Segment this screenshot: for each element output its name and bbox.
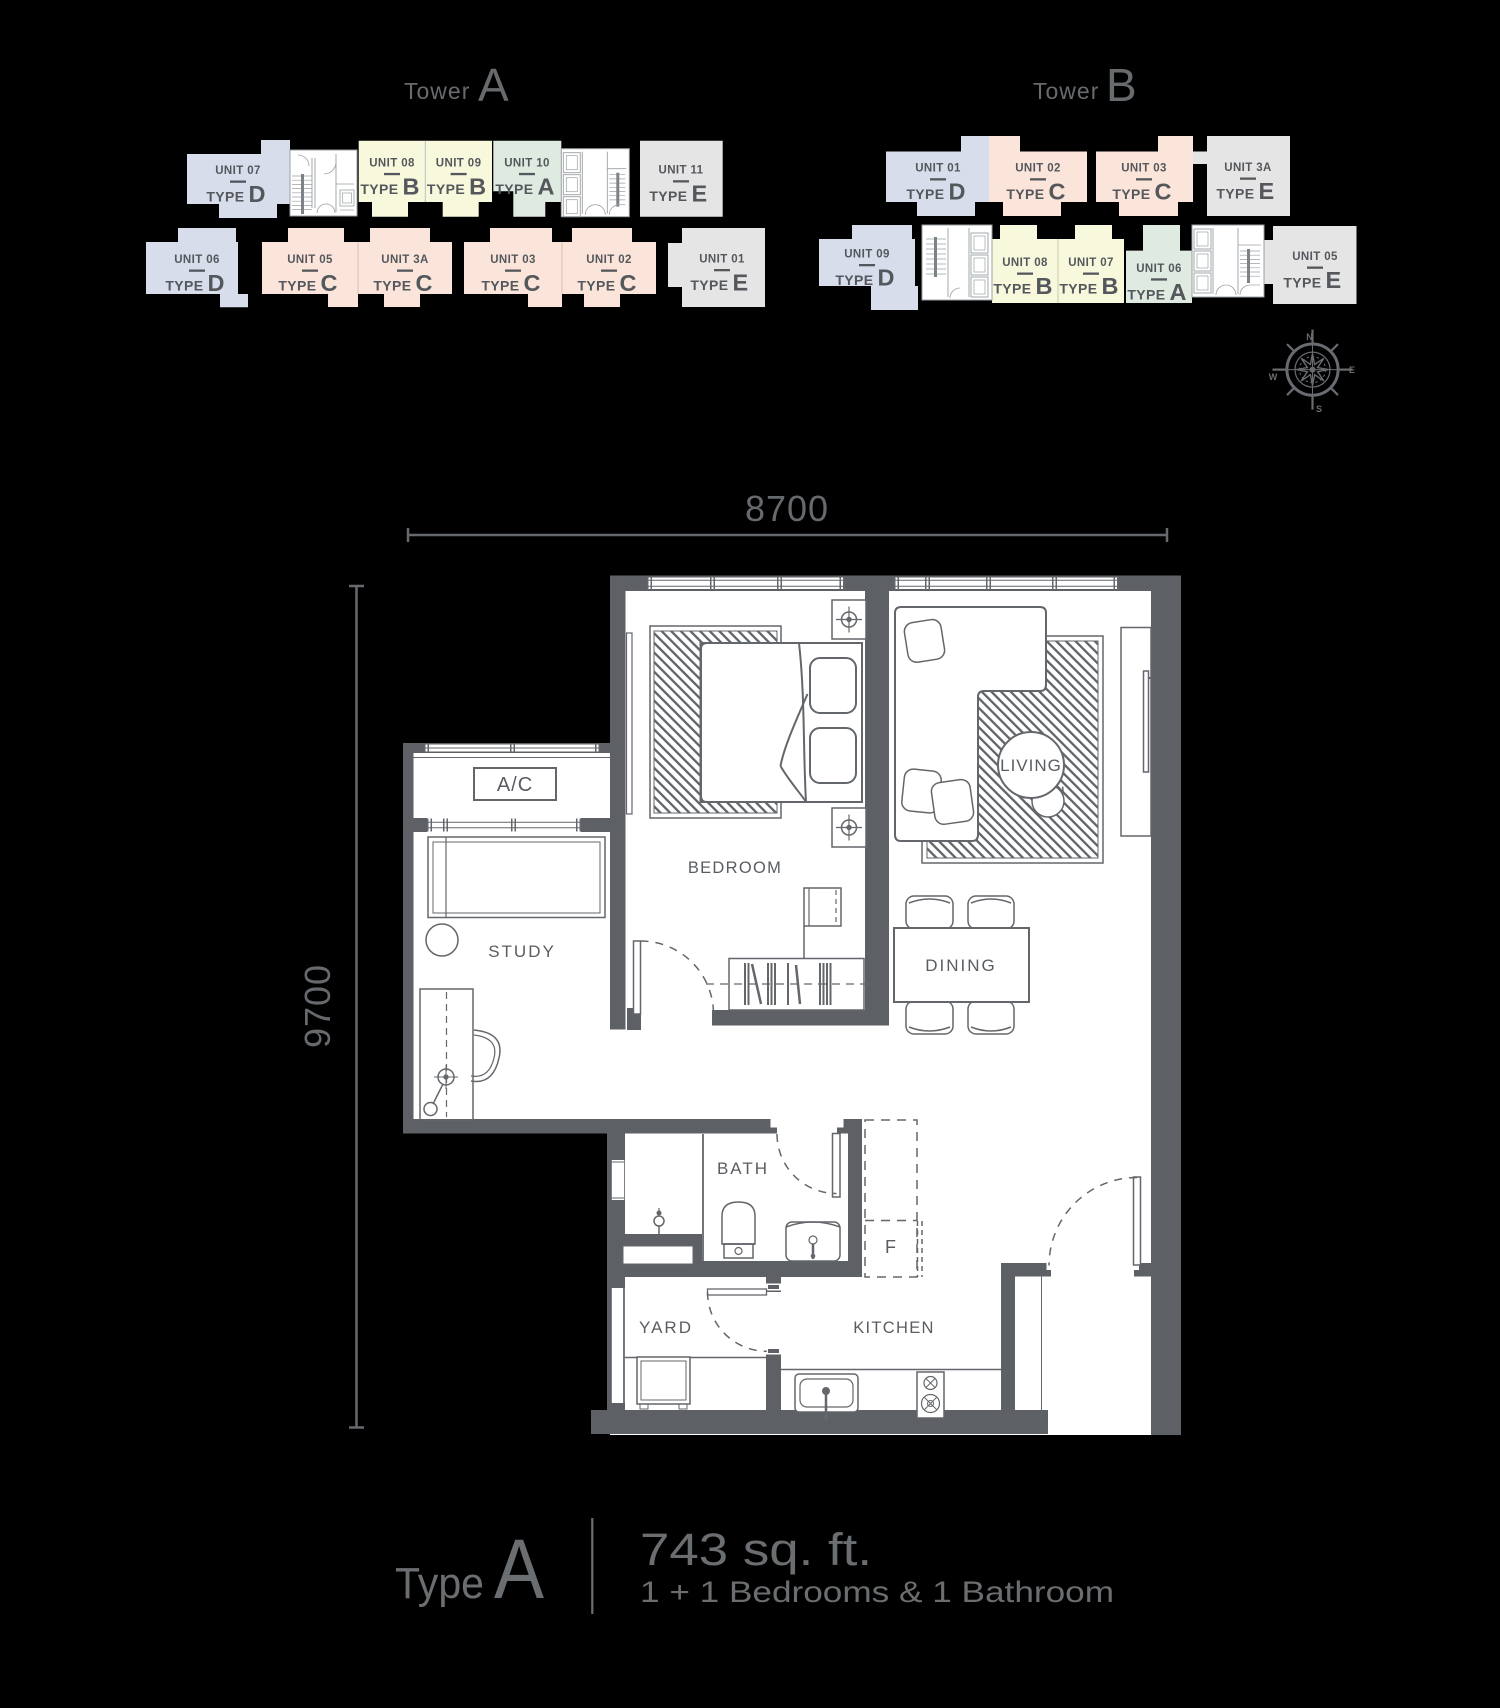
- svg-text:D: D: [949, 179, 966, 205]
- svg-text:TYPE: TYPE: [206, 189, 244, 205]
- svg-text:Tower: Tower: [1033, 78, 1099, 104]
- svg-text:YARD: YARD: [639, 1318, 693, 1337]
- svg-text:D: D: [208, 270, 225, 296]
- svg-text:UNIT 09: UNIT 09: [844, 249, 890, 261]
- svg-text:UNIT 10: UNIT 10: [504, 157, 550, 169]
- svg-text:UNIT 09: UNIT 09: [436, 157, 482, 169]
- svg-text:C: C: [1155, 179, 1172, 205]
- svg-text:TYPE: TYPE: [373, 278, 411, 294]
- svg-text:TYPE: TYPE: [1127, 286, 1165, 302]
- svg-text:UNIT 02: UNIT 02: [1015, 163, 1061, 175]
- svg-text:UNIT 02: UNIT 02: [586, 254, 632, 266]
- svg-text:TYPE: TYPE: [1006, 186, 1044, 202]
- svg-text:B: B: [1106, 59, 1137, 111]
- svg-text:UNIT 05: UNIT 05: [287, 254, 333, 266]
- svg-text:BATH: BATH: [717, 1159, 769, 1178]
- svg-text:UNIT 3A: UNIT 3A: [1224, 162, 1272, 174]
- svg-text:TYPE: TYPE: [1112, 186, 1150, 202]
- svg-text:8700: 8700: [745, 488, 829, 529]
- svg-text:TYPE: TYPE: [1216, 186, 1254, 202]
- svg-text:TYPE: TYPE: [1283, 275, 1321, 291]
- svg-text:E: E: [733, 270, 749, 296]
- svg-text:A: A: [478, 59, 509, 111]
- svg-text:B: B: [1036, 273, 1053, 299]
- svg-text:TYPE: TYPE: [495, 181, 533, 197]
- svg-text:UNIT 03: UNIT 03: [1121, 163, 1167, 175]
- svg-text:TYPE: TYPE: [835, 272, 873, 288]
- svg-text:B: B: [403, 173, 420, 199]
- svg-text:C: C: [620, 270, 637, 296]
- svg-text:A: A: [494, 1522, 544, 1616]
- svg-text:S: S: [1316, 404, 1322, 414]
- svg-text:UNIT 06: UNIT 06: [1136, 263, 1182, 275]
- svg-text:N: N: [1306, 332, 1313, 342]
- svg-text:TYPE: TYPE: [1059, 281, 1097, 297]
- svg-text:TYPE: TYPE: [906, 186, 944, 202]
- svg-text:C: C: [321, 270, 338, 296]
- svg-text:UNIT 01: UNIT 01: [699, 254, 745, 266]
- svg-text:Tower: Tower: [404, 78, 470, 104]
- svg-text:C: C: [524, 270, 541, 296]
- svg-text:E: E: [692, 181, 708, 207]
- svg-text:UNIT 03: UNIT 03: [490, 254, 536, 266]
- svg-text:W: W: [1269, 372, 1278, 382]
- svg-text:B: B: [1102, 273, 1119, 299]
- svg-text:TYPE: TYPE: [649, 188, 687, 204]
- svg-text:TYPE: TYPE: [278, 278, 316, 294]
- svg-text:DINING: DINING: [925, 956, 997, 975]
- svg-text:TYPE: TYPE: [165, 278, 203, 294]
- svg-text:A: A: [1170, 279, 1187, 305]
- svg-text:Type: Type: [395, 1559, 484, 1608]
- svg-text:UNIT 07: UNIT 07: [215, 165, 261, 177]
- svg-text:TYPE: TYPE: [481, 278, 519, 294]
- svg-text:BEDROOM: BEDROOM: [688, 859, 782, 877]
- svg-text:KITCHEN: KITCHEN: [853, 1319, 935, 1337]
- svg-text:UNIT 08: UNIT 08: [369, 157, 415, 169]
- svg-text:UNIT 01: UNIT 01: [915, 163, 961, 175]
- svg-text:E: E: [1349, 365, 1355, 375]
- svg-text:D: D: [878, 265, 895, 291]
- svg-text:TYPE: TYPE: [690, 277, 728, 293]
- svg-text:F: F: [885, 1237, 897, 1257]
- svg-text:C: C: [1049, 179, 1066, 205]
- svg-text:B: B: [469, 173, 486, 199]
- svg-text:9700: 9700: [297, 964, 338, 1048]
- svg-text:A: A: [538, 173, 555, 199]
- svg-text:TYPE: TYPE: [993, 281, 1031, 297]
- svg-text:1 + 1 Bedrooms & 1 Bathroom: 1 + 1 Bedrooms & 1 Bathroom: [640, 1576, 1114, 1609]
- svg-text:LIVING: LIVING: [1000, 756, 1062, 775]
- svg-text:A/C: A/C: [497, 774, 533, 796]
- svg-text:E: E: [1326, 267, 1342, 293]
- svg-text:C: C: [416, 270, 433, 296]
- svg-text:743 sq. ft.: 743 sq. ft.: [640, 1524, 872, 1575]
- svg-text:E: E: [1259, 178, 1275, 204]
- svg-text:UNIT 06: UNIT 06: [174, 254, 220, 266]
- svg-text:TYPE: TYPE: [427, 181, 465, 197]
- svg-text:UNIT 3A: UNIT 3A: [381, 254, 429, 266]
- svg-text:UNIT 05: UNIT 05: [1292, 251, 1338, 263]
- svg-text:TYPE: TYPE: [577, 278, 615, 294]
- svg-text:UNIT 08: UNIT 08: [1002, 257, 1048, 269]
- svg-text:STUDY: STUDY: [488, 942, 556, 961]
- svg-text:TYPE: TYPE: [360, 181, 398, 197]
- svg-text:D: D: [249, 181, 266, 207]
- svg-text:UNIT 07: UNIT 07: [1068, 257, 1114, 269]
- svg-text:UNIT 11: UNIT 11: [659, 165, 704, 177]
